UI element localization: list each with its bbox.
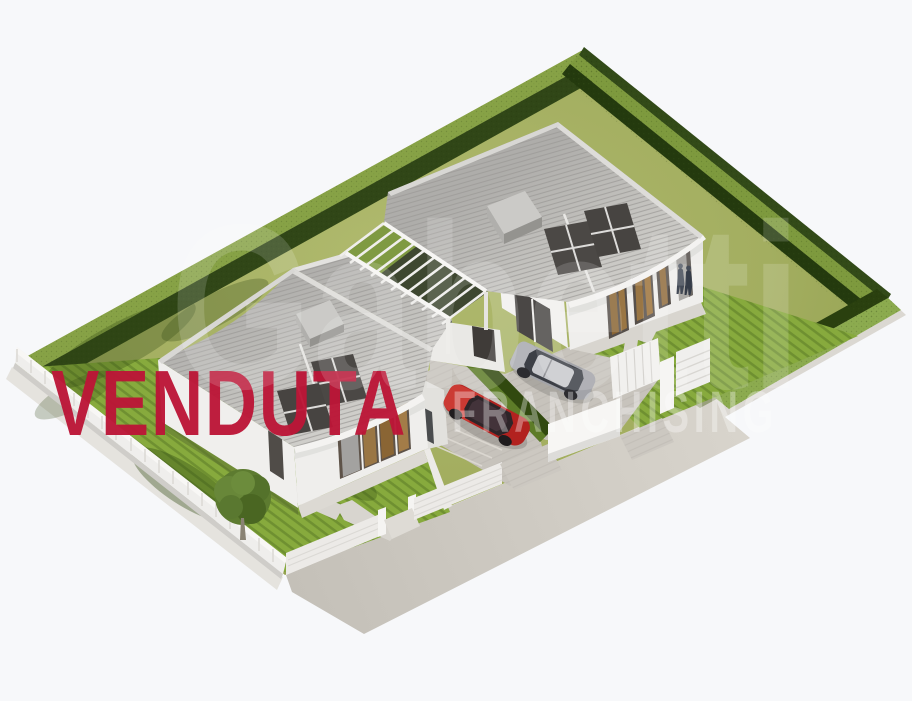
svg-text:FRANCHISING: FRANCHISING bbox=[452, 379, 778, 444]
